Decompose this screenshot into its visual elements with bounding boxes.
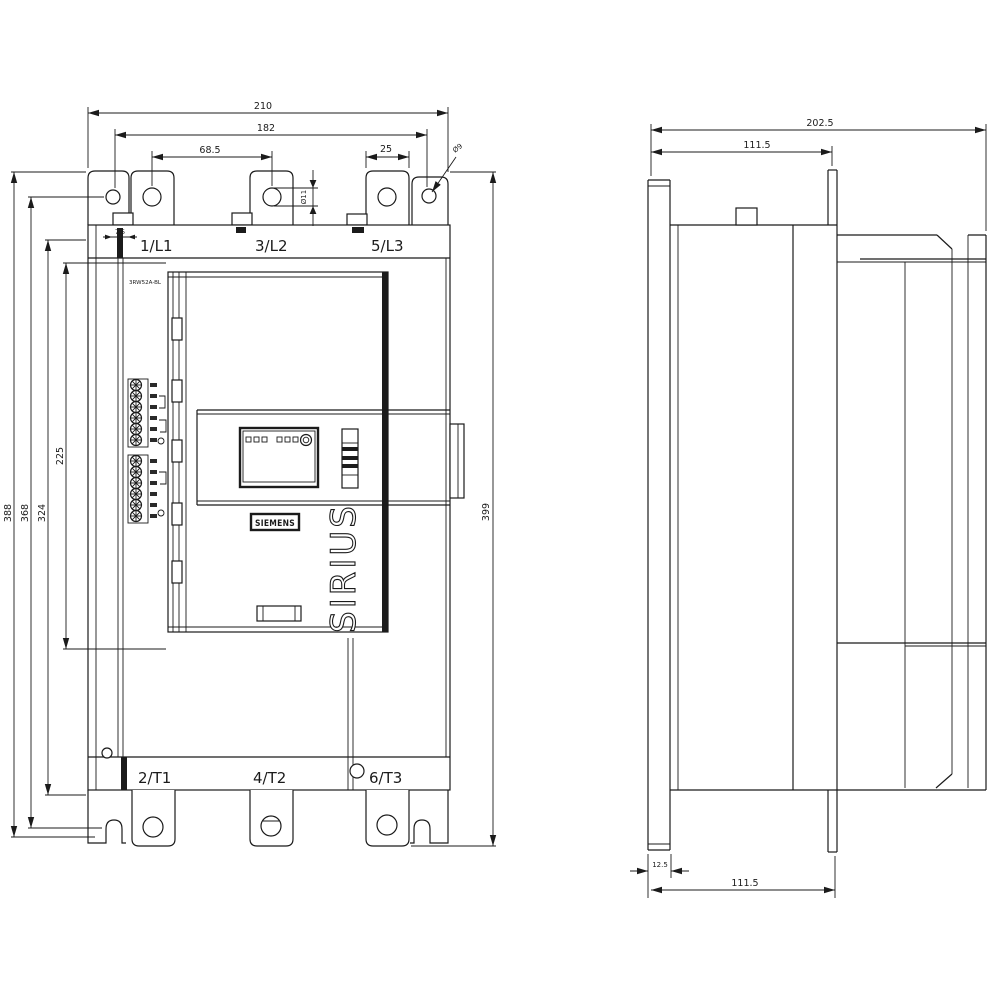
bottom-left-mounting-slot [88,790,126,843]
label-1L1: 1/L1 [140,237,173,255]
display-window [240,428,318,487]
dim-height-incl-terminals: 399 [481,503,492,521]
dim-terminal-hole-dia: Ø11 [300,190,308,204]
dim-depth-to-foot: 111.5 [731,878,758,889]
side-protrusion [450,424,464,498]
side-heatsink [837,225,986,790]
dim-overall-height: 388 [3,504,14,522]
cover-right-edge [382,272,388,632]
type-label: 3RW52A-BL [129,280,162,286]
terminal-hole-6T3 [377,815,397,835]
mounting-hole-top-right [422,189,436,203]
terminal-hole-3L2 [263,188,281,206]
side-body [670,170,986,852]
front-view: 3RW52A-BL [88,171,464,846]
dim-depth-to-tab: 111.5 [743,140,770,151]
dim-terminal-spacing: 68.5 [199,145,220,156]
top-bump [736,208,757,225]
dim-busbar-offset: 7.5 [115,228,125,236]
terminal-hole-1L1 [143,188,161,206]
busbar-end-bottom [121,757,127,790]
dim-back-strip-depth: 12.5 [652,861,668,869]
dim-housing-height: 324 [37,504,48,522]
label-2T1: 2/T1 [138,769,171,787]
label-3L2: 3/L2 [255,237,288,255]
side-back-strip [648,180,670,850]
label-6T3: 6/T3 [369,769,402,787]
front-bottom-terminals [88,790,448,846]
side-view [648,170,986,852]
brand-text: SIEMENS [255,519,295,529]
terminal-hole-2T1 [143,817,163,837]
dim-cover-height: 225 [55,447,66,465]
brand-logo: SIEMENS [251,514,299,530]
dim-tab-width: 25 [380,144,392,155]
label-4T2: 4/T2 [253,769,286,787]
terminal-hole-5L3 [378,188,396,206]
dim-mounting-spacing-v: 368 [20,504,31,522]
nameplate [257,606,301,621]
dim-mounting-hole-dia: Ø9 [451,142,464,154]
bottom-right-mounting-slot [410,790,448,843]
front-top-terminals [88,171,448,225]
dimensional-drawing: 3RW52A-BL [0,0,1000,1000]
selector-strip [342,429,358,488]
dim-overall-depth: 202.5 [806,118,833,129]
mounting-hole-top-left [106,190,120,204]
technical-drawing-page: 3RW52A-BL [0,0,1000,1000]
terminal-hole-4T2 [261,816,281,836]
series-text: SIRIUS [324,503,364,633]
reset-button-icon [301,435,312,446]
label-5L3: 5/L3 [371,237,404,255]
dim-mounting-spacing-h: 182 [257,123,275,134]
dim-overall-width: 210 [254,101,272,112]
